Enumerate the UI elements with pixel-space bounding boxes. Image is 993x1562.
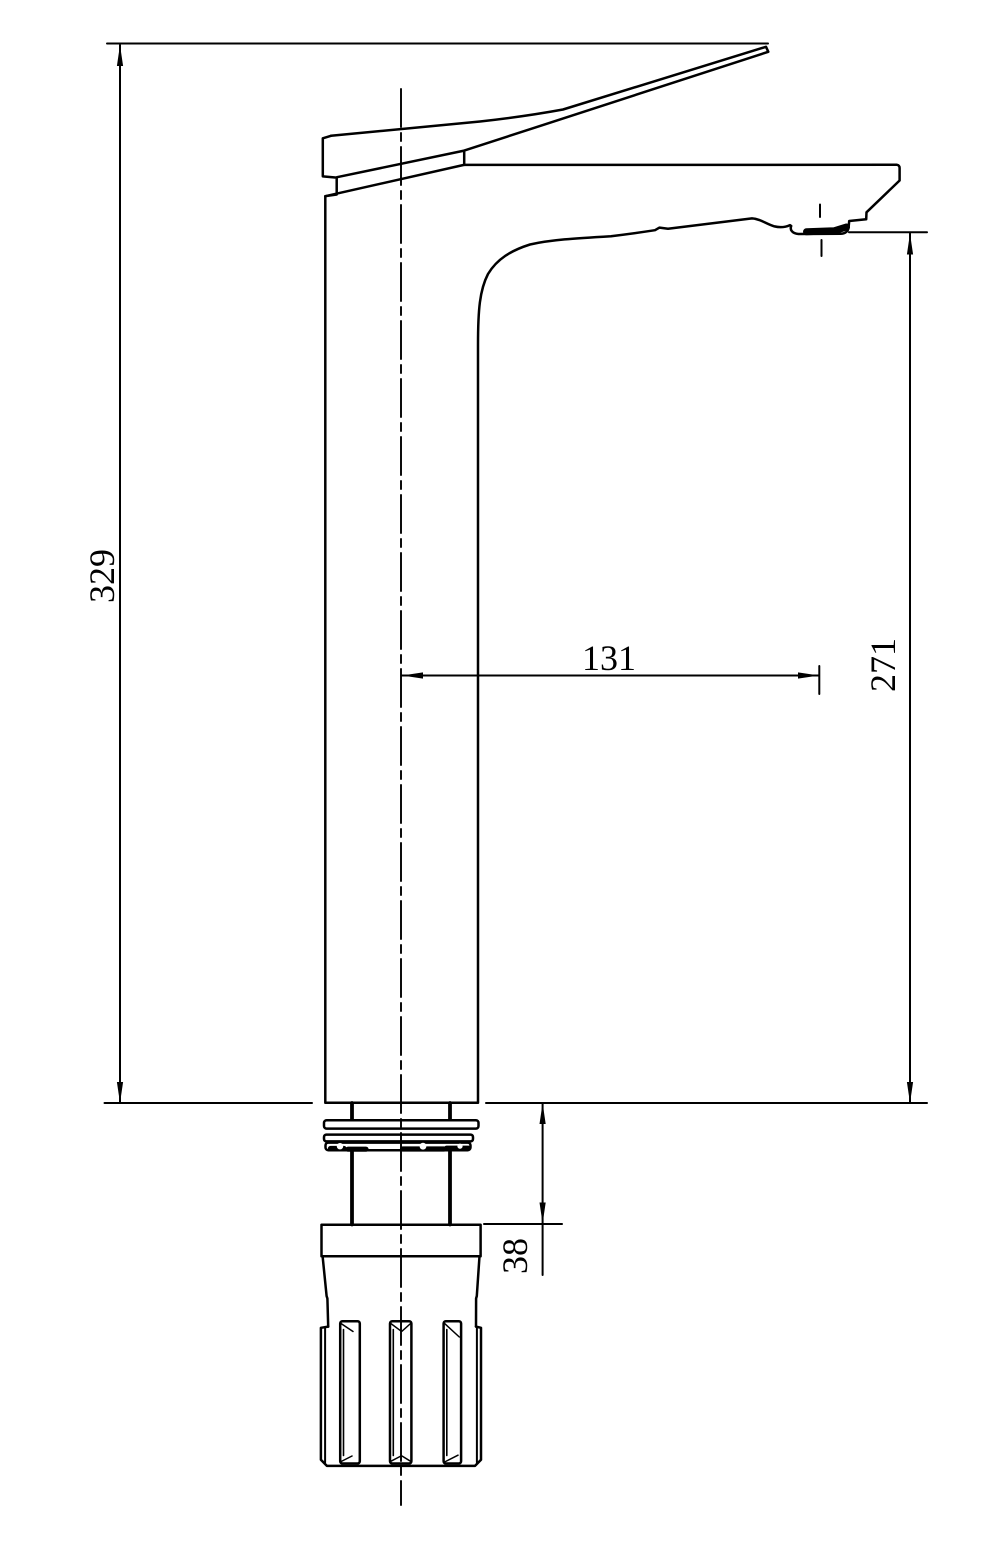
svg-text:329: 329 xyxy=(82,549,122,603)
svg-text:131: 131 xyxy=(582,638,636,678)
svg-text:271: 271 xyxy=(863,638,903,692)
svg-text:38: 38 xyxy=(495,1238,535,1274)
